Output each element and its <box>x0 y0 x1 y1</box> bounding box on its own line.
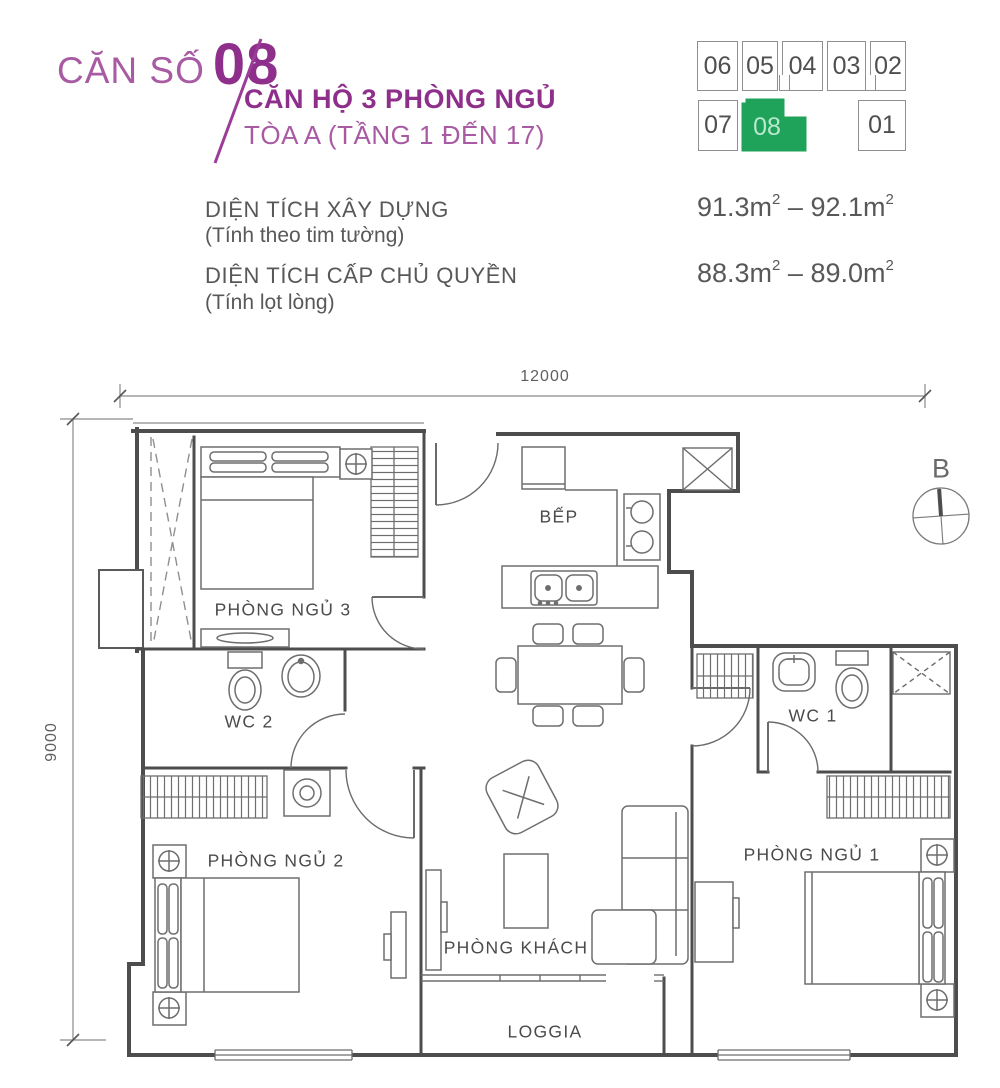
coffee-table-icon <box>504 854 548 928</box>
shaft-kitchen-icon <box>683 448 732 490</box>
wc2-sink-icon <box>282 655 320 697</box>
room-label-wc1: WC 1 <box>789 706 838 727</box>
armchair-icon <box>482 756 562 838</box>
wardrobe-bedroom2-icon <box>141 776 267 818</box>
unit-locator-minimap: 06 05 04 03 02 07 08 01 <box>695 38 911 154</box>
area-built-label: DIỆN TÍCH XÂY DỰNG <box>205 197 449 223</box>
unit-label: CĂN SỐ <box>57 52 205 89</box>
bedroom2-bed-icon <box>153 845 299 1025</box>
wall-pier <box>99 570 143 648</box>
kitchen-cabinet-icon <box>522 447 565 489</box>
room-label-bedroom2: PHÒNG NGỦ 2 <box>208 851 345 872</box>
apartment-type-title: CĂN HỘ 3 PHÒNG NGỦ <box>244 84 556 115</box>
wardrobe-bedroom1-icon <box>827 776 950 818</box>
area-built-value: 91.3m2 – 92.1m2 <box>697 192 894 223</box>
minimap-unit-08: 08 <box>742 113 792 142</box>
wc1-sink-icon <box>773 653 815 691</box>
kitchen-counter-edge <box>565 490 617 566</box>
area-built-from: 91.3m <box>697 192 772 222</box>
bedroom1-window <box>718 1048 850 1062</box>
room-label-bedroom1: PHÒNG NGỦ 1 <box>744 845 881 866</box>
minimap-unit-01: 01 <box>858 100 906 151</box>
tv-cabinet-bedroom2-icon <box>384 912 406 978</box>
tv-cabinet-bedroom1-icon <box>695 882 739 962</box>
compass-icon <box>911 486 971 546</box>
bedroom3-dresser-icon <box>201 629 289 647</box>
area-built-to: 92.1m <box>810 192 885 222</box>
dimension-height-label: 9000 <box>43 722 61 762</box>
sofa-icon <box>592 806 688 964</box>
floor-plan-svg <box>0 0 1000 1088</box>
dining-table-icon <box>496 624 644 726</box>
room-label-living: PHÒNG KHÁCH <box>444 938 589 959</box>
bedroom1-bed-icon <box>805 839 954 1017</box>
room-label-wc2: WC 2 <box>225 712 274 733</box>
room-label-bedroom3: PHÒNG NGỦ 3 <box>215 600 352 621</box>
room-label-kitchen: BẾP <box>540 507 579 528</box>
closet-wc1-icon <box>697 654 753 698</box>
kitchen-sink-icon <box>502 566 658 608</box>
duct-dashed-icon <box>151 437 192 647</box>
room-label-loggia: LOGGIA <box>508 1022 583 1043</box>
loggia-window <box>421 975 664 981</box>
tower-floors-subtitle: TÒA A (TẦNG 1 ĐẾN 17) <box>244 120 545 151</box>
area-ownership-to: 89.0m <box>810 258 885 288</box>
shaft-wc1-icon <box>893 652 950 694</box>
area-built-note: (Tính theo tim tường) <box>205 224 404 248</box>
wc1-toilet-icon <box>836 651 868 708</box>
wardrobe-bedroom3-icon <box>371 447 418 557</box>
area-ownership-from: 88.3m <box>697 258 772 288</box>
area-ownership-label: DIỆN TÍCH CẤP CHỦ QUYỀN <box>205 263 517 289</box>
area-ownership-value: 88.3m2 – 89.0m2 <box>697 258 894 289</box>
wc2-toilet-icon <box>228 652 262 710</box>
compass-north-label: B <box>932 454 950 485</box>
floor-plan-page: CĂN SỐ 08 CĂN HỘ 3 PHÒNG NGỦ TÒA A (TẦNG… <box>0 0 1000 1088</box>
dimension-width-label: 12000 <box>520 368 570 386</box>
bedroom3-nightstand-icon <box>340 449 372 479</box>
bedroom3-bed-icon <box>201 447 340 589</box>
washer-icon <box>284 770 330 816</box>
stove-icon <box>624 494 660 560</box>
bedroom2-window <box>215 1048 352 1062</box>
area-ownership-note: (Tính lọt lòng) <box>205 291 335 315</box>
